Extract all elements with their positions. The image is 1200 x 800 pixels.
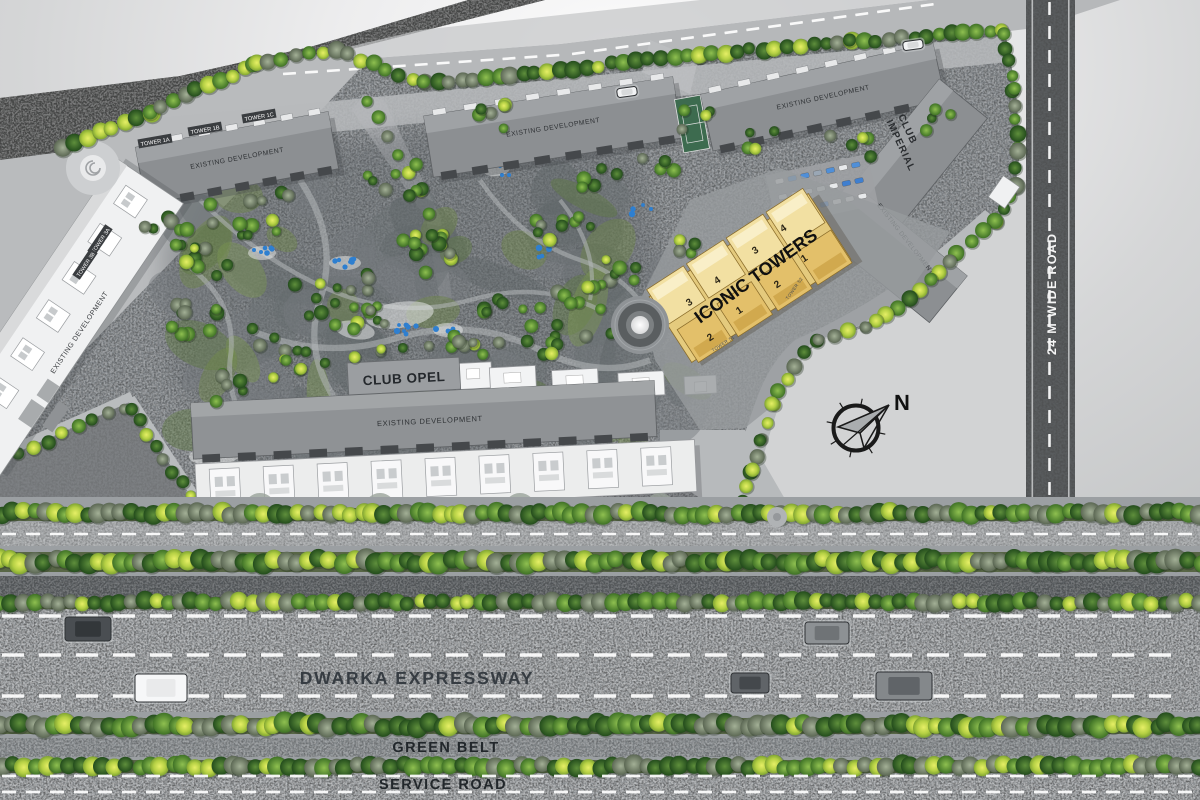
svg-text:N: N: [894, 390, 910, 415]
svg-text:GREEN BELT: GREEN BELT: [392, 740, 499, 756]
svg-text:DWARKA EXPRESSWAY: DWARKA EXPRESSWAY: [300, 668, 534, 688]
svg-text:24 M WIDE ROAD: 24 M WIDE ROAD: [1045, 233, 1059, 355]
svg-text:SERVICE ROAD: SERVICE ROAD: [379, 777, 507, 793]
